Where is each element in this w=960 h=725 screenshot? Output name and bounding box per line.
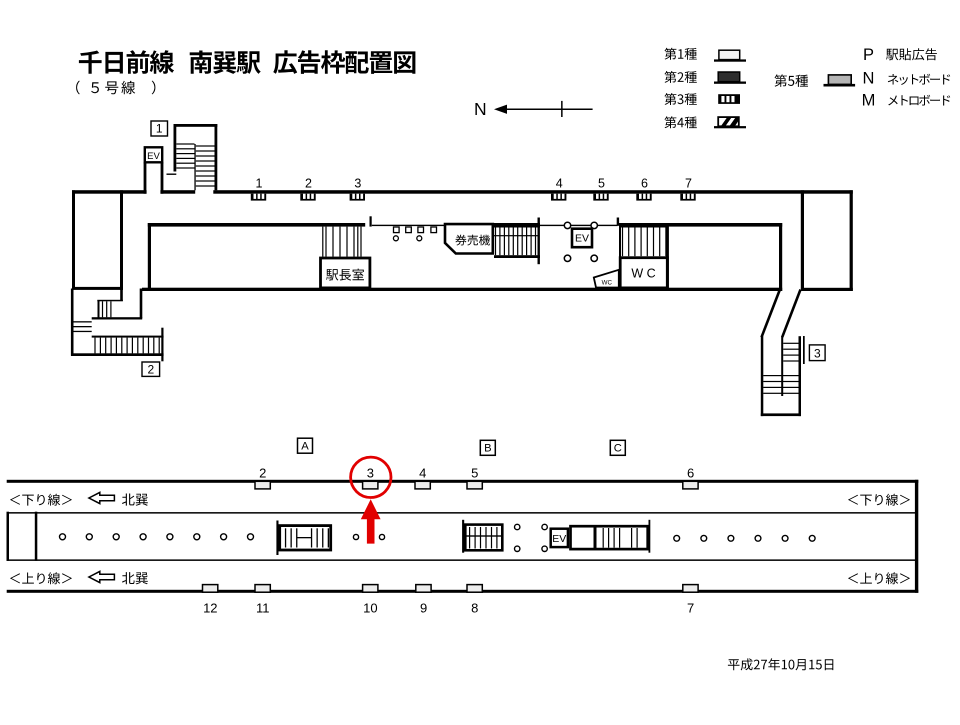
svg-text:2: 2	[148, 362, 155, 376]
svg-text:M: M	[862, 91, 876, 109]
svg-text:1: 1	[156, 122, 163, 136]
svg-text:7: 7	[687, 601, 694, 616]
svg-text:2: 2	[305, 177, 312, 191]
svg-text:EV: EV	[552, 533, 566, 545]
svg-text:8: 8	[471, 601, 478, 616]
svg-text:EV: EV	[147, 151, 160, 162]
svg-text:4: 4	[556, 177, 563, 191]
svg-text:5: 5	[471, 466, 478, 481]
svg-text:5: 5	[598, 177, 605, 191]
svg-text:W C: W C	[631, 267, 655, 281]
svg-text:2: 2	[259, 466, 266, 481]
svg-text:N: N	[863, 70, 875, 88]
svg-text:12: 12	[203, 601, 217, 616]
svg-text:11: 11	[256, 601, 270, 616]
svg-text:9: 9	[420, 601, 427, 616]
svg-text:3: 3	[367, 466, 374, 481]
svg-text:WC: WC	[602, 279, 613, 286]
svg-text:10: 10	[363, 601, 377, 616]
svg-text:6: 6	[687, 466, 694, 481]
svg-text:A: A	[301, 441, 309, 453]
svg-text:P: P	[863, 46, 874, 64]
svg-text:3: 3	[814, 346, 821, 360]
svg-text:B: B	[484, 443, 491, 455]
svg-text:N: N	[474, 99, 487, 119]
svg-text:1: 1	[256, 177, 263, 191]
svg-text:C: C	[614, 443, 622, 455]
svg-text:3: 3	[354, 177, 361, 191]
svg-text:4: 4	[419, 466, 426, 481]
svg-text:EV: EV	[575, 233, 589, 245]
svg-text:6: 6	[641, 177, 648, 191]
svg-text:7: 7	[685, 177, 692, 191]
